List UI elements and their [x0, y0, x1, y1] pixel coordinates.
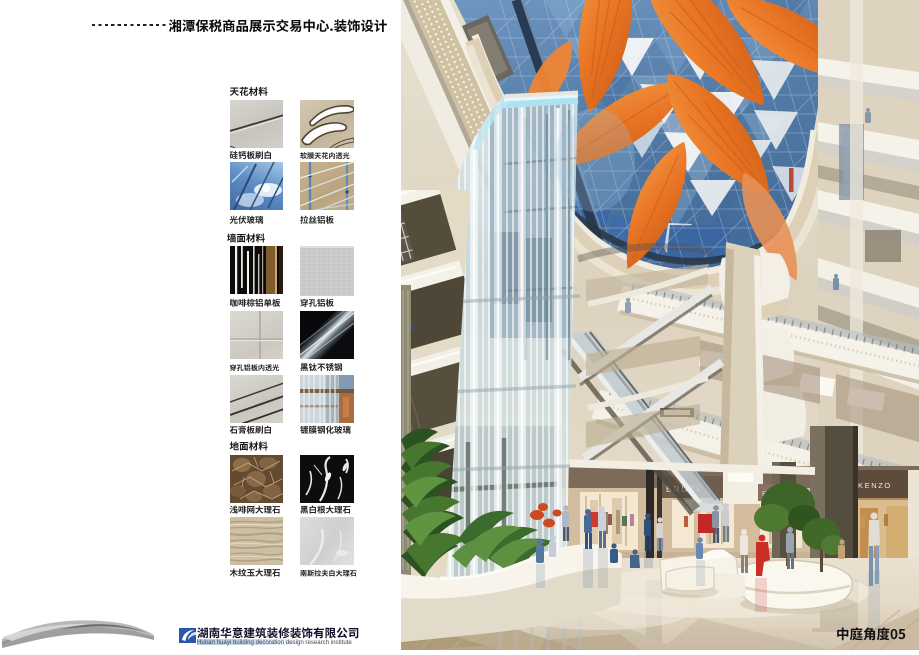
svg-text:KENZO: KENZO: [858, 481, 892, 490]
